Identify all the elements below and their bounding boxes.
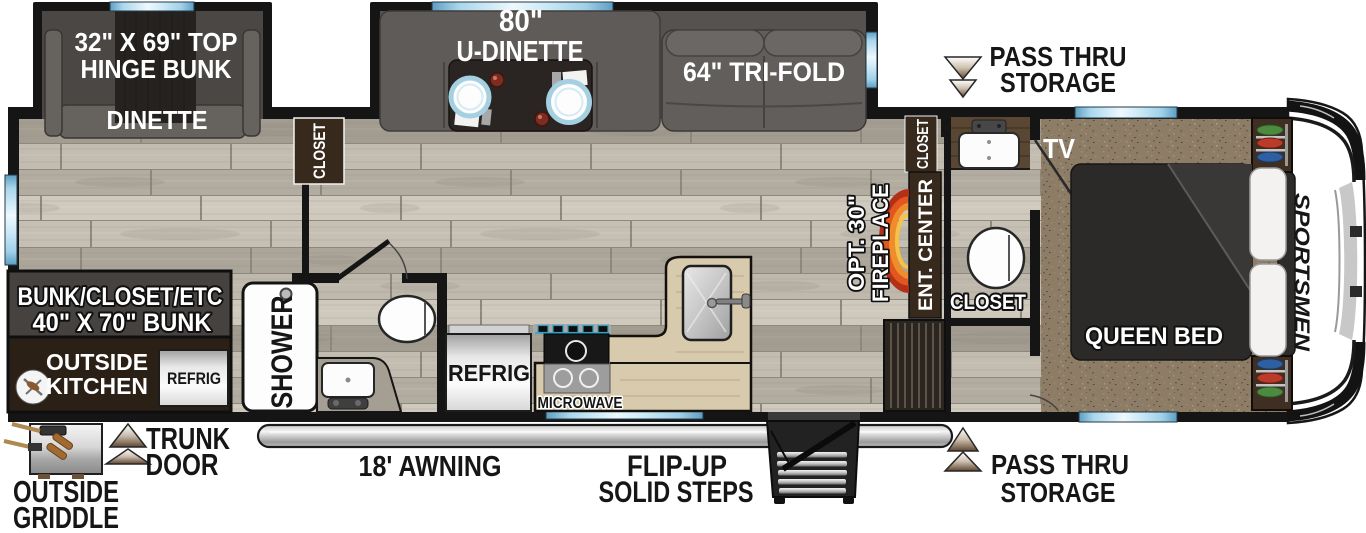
svg-text:REFRIG: REFRIG (167, 369, 221, 388)
svg-text:40" X 70" BUNK: 40" X 70" BUNK (33, 309, 212, 337)
svg-text:OPT. 30": OPT. 30" (844, 195, 869, 291)
svg-text:BUNK/CLOSET/ETC: BUNK/CLOSET/ETC (18, 283, 223, 311)
svg-text:QUEEN BED: QUEEN BED (1085, 323, 1223, 350)
svg-text:STORAGE: STORAGE (1000, 67, 1116, 98)
svg-text:HINGE BUNK: HINGE BUNK (81, 54, 232, 84)
svg-text:U-DINETTE: U-DINETTE (457, 36, 584, 68)
svg-text:CLOSET: CLOSET (950, 291, 1026, 314)
svg-text:CLOSET: CLOSET (310, 123, 329, 179)
svg-text:GRIDDLE: GRIDDLE (13, 500, 119, 533)
svg-text:KITCHEN: KITCHEN (46, 373, 148, 399)
svg-text:PASS THRU: PASS THRU (991, 449, 1129, 480)
svg-text:SOLID STEPS: SOLID STEPS (599, 476, 754, 509)
svg-text:CLOSET: CLOSET (915, 119, 932, 169)
svg-text:REFRIG: REFRIG (448, 360, 530, 386)
svg-text:80": 80" (499, 3, 543, 38)
svg-text:64" TRI-FOLD: 64" TRI-FOLD (683, 57, 845, 87)
svg-text:DOOR: DOOR (146, 447, 219, 482)
svg-text:32" X 69" TOP: 32" X 69" TOP (75, 27, 238, 57)
svg-text:18' AWNING: 18' AWNING (359, 451, 502, 483)
svg-text:MICROWAVE: MICROWAVE (538, 395, 623, 412)
svg-text:ENT. CENTER: ENT. CENTER (916, 179, 937, 311)
svg-text:STORAGE: STORAGE (1001, 477, 1116, 508)
svg-text:DINETTE: DINETTE (107, 105, 208, 135)
svg-text:TV: TV (1043, 133, 1075, 164)
svg-text:FIREPLACE: FIREPLACE (868, 184, 893, 302)
svg-text:SHOWER: SHOWER (266, 295, 299, 408)
svg-text:OUTSIDE: OUTSIDE (46, 349, 148, 375)
